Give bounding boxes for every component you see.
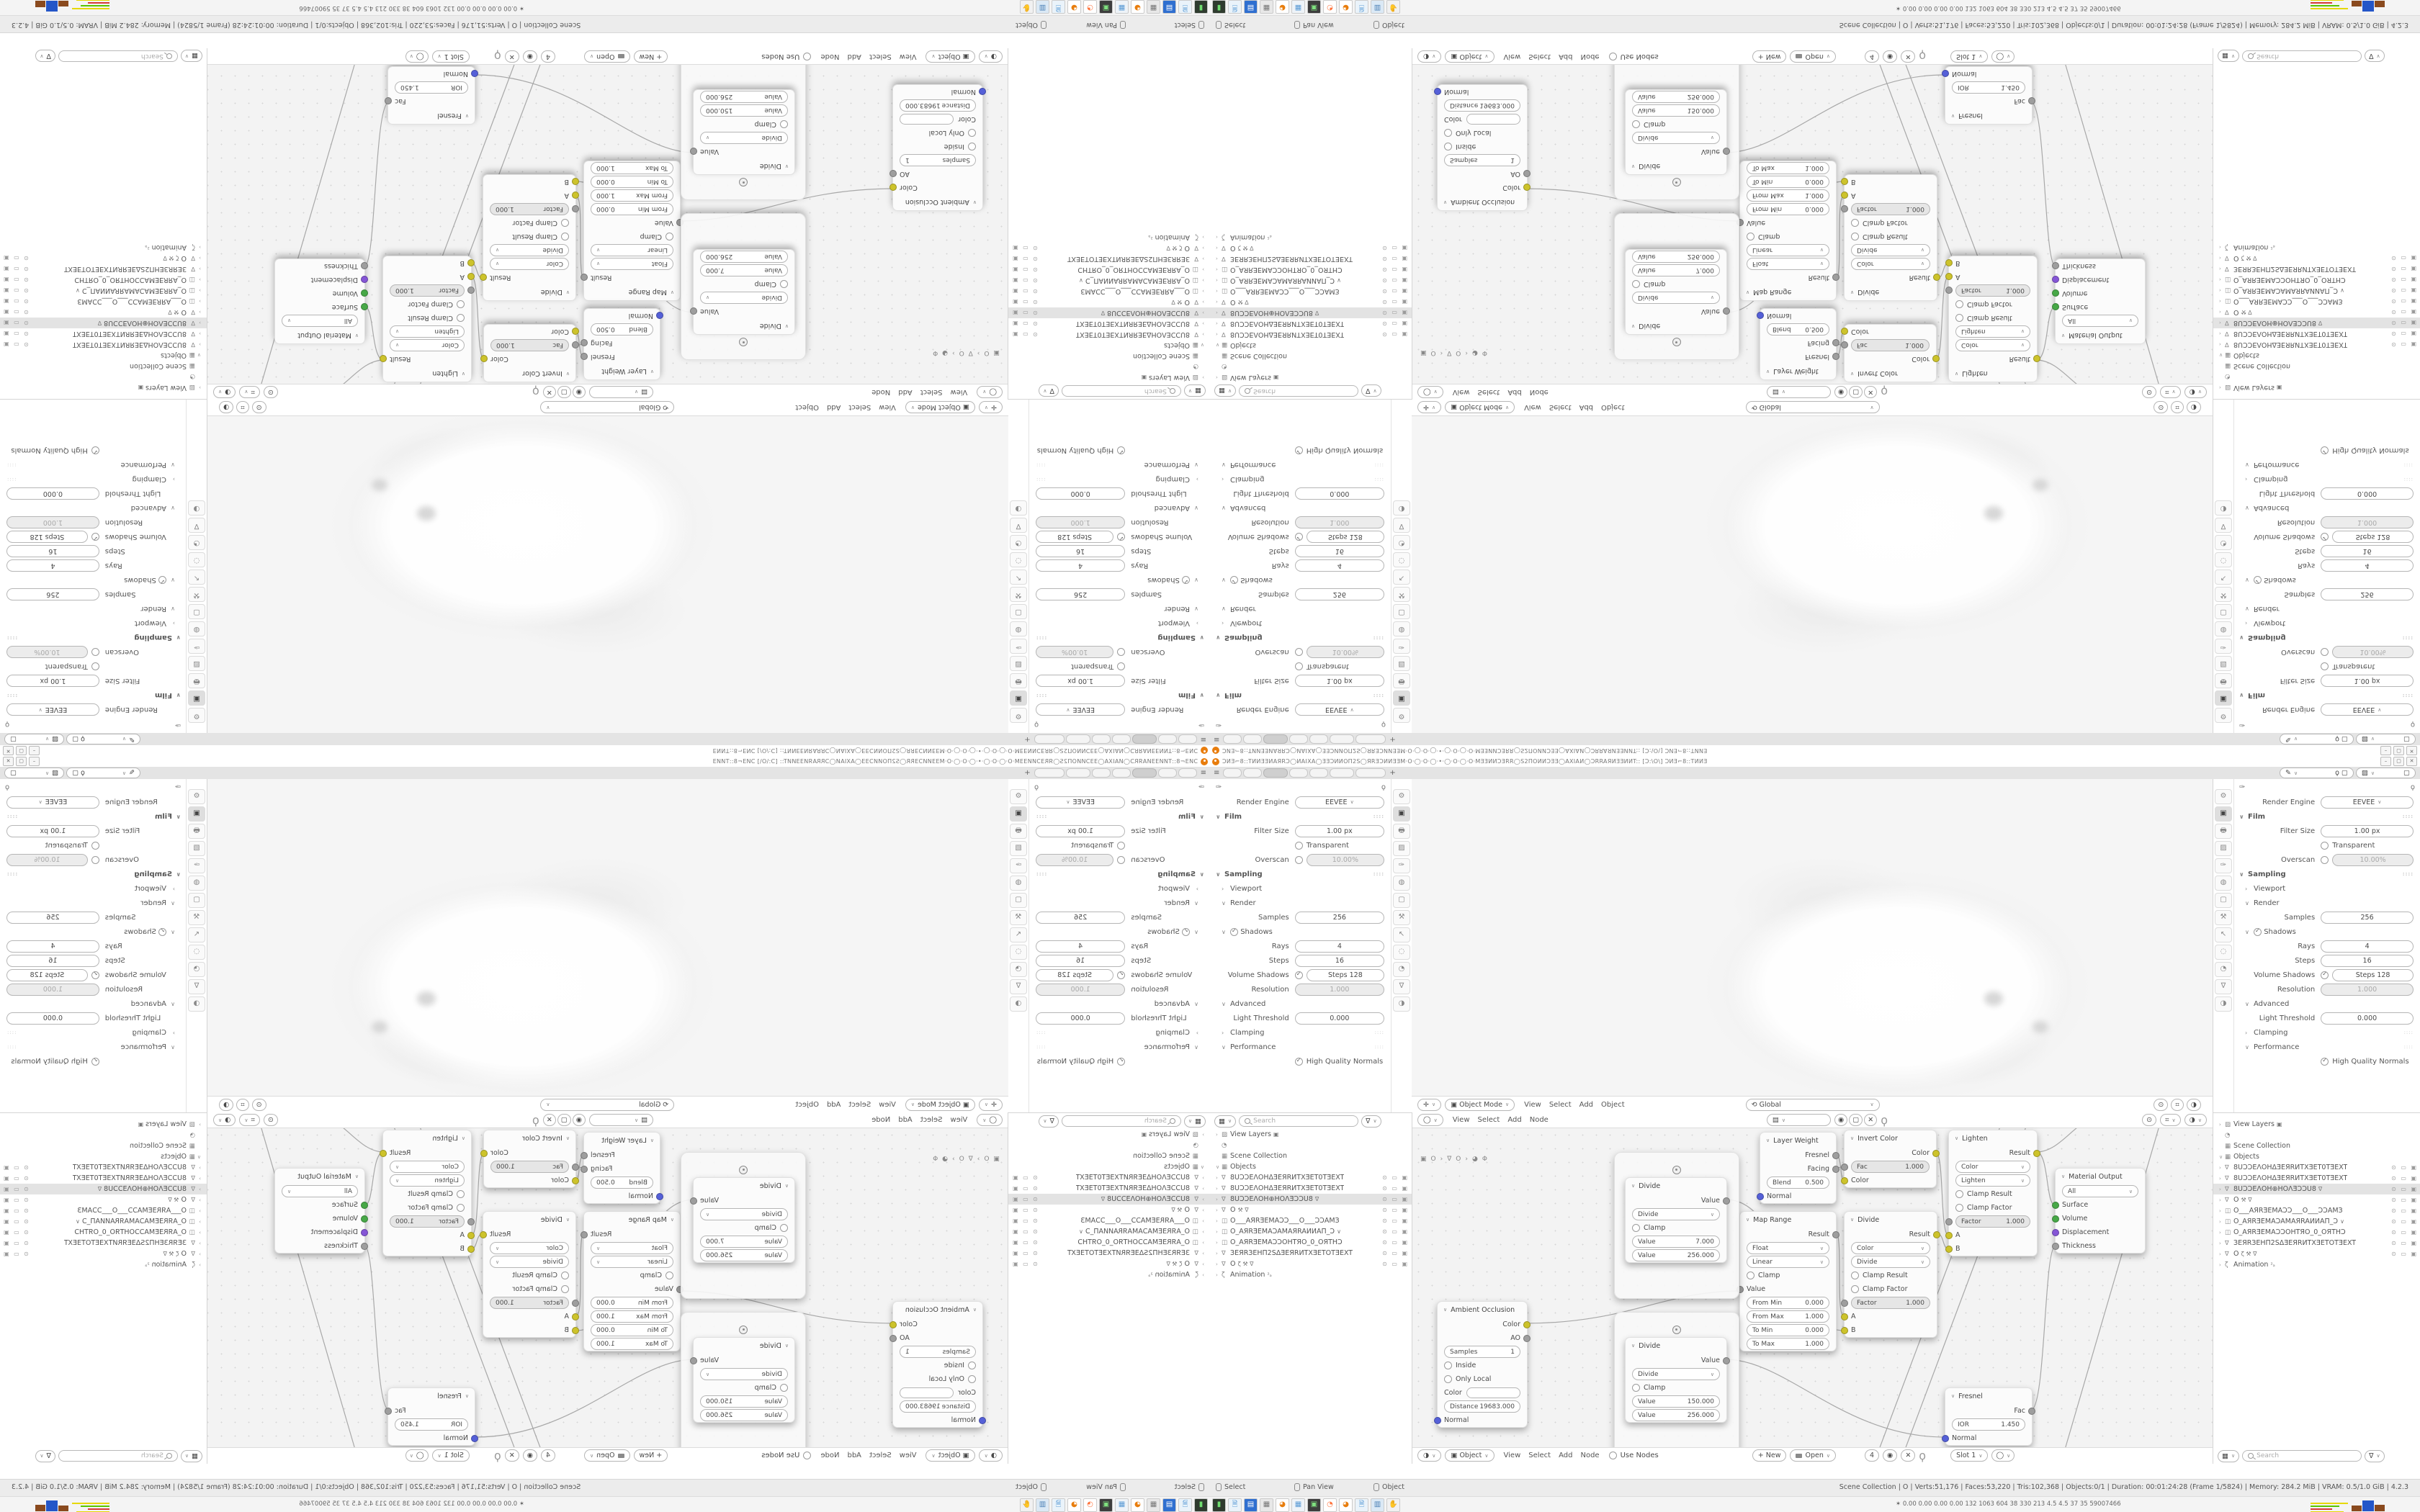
- node-checkbox[interactable]: Clamp Result: [383, 1187, 471, 1201]
- input-socket[interactable]: [656, 1193, 663, 1200]
- properties-tab-icon[interactable]: ▢: [188, 604, 205, 619]
- taskbar-app-icon[interactable]: ▥: [1371, 1, 1384, 14]
- window-titlebar[interactable]: ƆИƎ⌐8::TИИƎƎͶAЯRƆ◯ИAIXA◯ƎƎƆИИOΠ2S◯ЯRƎƆИИ…: [0, 744, 1210, 756]
- property-row[interactable]: High Quality Normals: [1210, 1054, 1391, 1068]
- properties-tab-icon[interactable]: 🖶: [188, 824, 205, 839]
- node-menu-item[interactable]: View: [1453, 388, 1470, 396]
- outliner-filter-button[interactable]: ∇∨: [1361, 1115, 1381, 1128]
- outliner-row[interactable]: ›∇8UƆƆEΛOHΔƎEЯRИTXƎET0TƎEXT⊙ ▭ ▣: [1008, 318, 1210, 329]
- add-workspace-button[interactable]: +: [1024, 769, 1030, 777]
- property-row[interactable]: Steps16: [1028, 953, 1210, 968]
- node-menu-item[interactable]: View: [1504, 1452, 1521, 1459]
- outliner-row[interactable]: ▦Scene Collection: [1008, 1151, 1210, 1161]
- node-shading-button[interactable]: ◯∨: [405, 1449, 429, 1462]
- node-dropdown[interactable]: Divide∨: [1626, 1367, 1726, 1381]
- outliner-row[interactable]: ◔: [1008, 361, 1210, 372]
- editor-type-button[interactable]: ◑∨: [1417, 1449, 1441, 1462]
- outliner-row[interactable]: ›ζAnimation²ₐ: [2213, 242, 2420, 253]
- input-socket[interactable]: [1841, 179, 1848, 186]
- node-dropdown[interactable]: All∨: [275, 314, 364, 328]
- outliner-row[interactable]: ›∇8UƆƆEΛOH⊕HOΛƎƆƆU8∇⊙ ▭ ▣: [1210, 1194, 1412, 1205]
- viewport-menu-item[interactable]: Add: [827, 404, 841, 412]
- node-menu-item[interactable]: Select: [869, 1452, 892, 1459]
- properties-tab-icon[interactable]: ✑: [2215, 858, 2232, 873]
- input-socket[interactable]: [361, 304, 368, 311]
- orientation-selector[interactable]: ⟲ Global∨: [1746, 402, 1880, 414]
- input-socket[interactable]: [1841, 1177, 1848, 1184]
- object-context-button[interactable]: ▣ Object∨: [926, 50, 974, 63]
- snap-button[interactable]: ⌗∨: [239, 386, 259, 398]
- property-row[interactable]: ›Viewport: [2233, 616, 2420, 631]
- outliner-row[interactable]: ▦Scene Collection: [1210, 351, 1412, 361]
- outliner-row[interactable]: ›◫O___AЯRƎEMAƆƆ___O___ƆƆAMЗ⊙ ▭ ▣: [1210, 286, 1412, 297]
- workspace-tab[interactable]: [1132, 768, 1157, 778]
- outliner-row[interactable]: ›∇8UƆƆEΛOHΔƎEЯRИTXƎET0TƎEXT⊙ ▭ ▣: [1210, 1183, 1412, 1194]
- fake-user-button[interactable]: ◉: [1883, 1449, 1897, 1462]
- open-image-button[interactable]: Open∨: [1790, 50, 1836, 63]
- outliner-row[interactable]: ›∇O⚒ ∇⊙ ▭ ▣: [1210, 1205, 1412, 1215]
- output-socket[interactable]: [480, 1231, 487, 1238]
- node-title[interactable]: ∨Lighten: [1949, 1130, 2037, 1146]
- node-value-field[interactable]: Factor1.000: [383, 1215, 471, 1228]
- scene-selector[interactable]: ✎∨ϙ▢: [66, 768, 140, 778]
- viewport-toggle-button[interactable]: ⊙: [252, 402, 266, 414]
- outliner-row[interactable]: ∨▦Objects: [1008, 1161, 1210, 1172]
- property-row[interactable]: Light Threshold0.000: [0, 487, 187, 501]
- shader-node[interactable]: ∨Map RangeResultFloat∨Linear∨ClampValueF…: [583, 161, 681, 301]
- property-row[interactable]: Samples256: [2233, 910, 2420, 924]
- workspace-tab[interactable]: [1263, 734, 1288, 744]
- reroute-node[interactable]: [739, 338, 748, 346]
- viewport-menu-item[interactable]: Object: [1601, 404, 1625, 412]
- node-checkbox[interactable]: Clamp: [694, 277, 794, 291]
- input-socket[interactable]: [656, 312, 663, 320]
- outliner-row[interactable]: ›◫O_AЯRƎEMAƆƆOHTЯO_0_OЯTHƆ⊙ ▭ ▣: [1008, 1237, 1210, 1248]
- outliner-row[interactable]: ›◫O_AЯRƎEMAƆƆOHTЯO_0_OЯTHƆ⊙ ▭ ▣: [1210, 264, 1412, 275]
- taskbar-app-icon[interactable]: ◕: [1067, 1498, 1081, 1512]
- properties-tab-icon[interactable]: 🖶: [1393, 673, 1410, 688]
- node-title[interactable]: ∨Divide: [1845, 284, 1937, 300]
- properties-tab-icon[interactable]: ◍: [2215, 876, 2232, 891]
- taskbar-app-icon[interactable]: 🗎: [1178, 1, 1192, 14]
- node-value-field[interactable]: To Max1.000: [1740, 161, 1836, 175]
- editor-type-button[interactable]: ◑∨: [979, 50, 1003, 63]
- material-action-button[interactable]: ◉: [573, 1114, 586, 1126]
- taskbar-app-icon[interactable]: ◔: [1323, 1498, 1337, 1512]
- properties-tab-icon[interactable]: ⚒: [2215, 910, 2232, 925]
- node-menu-item[interactable]: Select: [869, 53, 892, 60]
- outliner-row[interactable]: ›ζAnimation²ₐ: [1008, 232, 1210, 243]
- reroute-node[interactable]: [739, 178, 748, 186]
- viewport-menu-item[interactable]: Select: [848, 1101, 871, 1109]
- properties-tab-icon[interactable]: ✑: [1393, 639, 1410, 654]
- reroute-node[interactable]: [739, 1166, 748, 1174]
- shader-node[interactable]: ∨DivideValueDivide∨ClampValue150.000Valu…: [1625, 1337, 1727, 1423]
- input-socket[interactable]: [572, 179, 579, 186]
- input-socket[interactable]: [467, 1246, 475, 1253]
- minimize-button[interactable]: –: [29, 757, 40, 766]
- node-value-field[interactable]: From Max1.000: [584, 189, 680, 202]
- node-value-field[interactable]: Value7.000: [1626, 264, 1726, 277]
- property-row[interactable]: Volume ShadowsSteps 128: [1028, 968, 1210, 982]
- material-action-button[interactable]: ✕: [1864, 1114, 1877, 1126]
- property-row[interactable]: ›Viewport: [1028, 881, 1210, 896]
- shader-node[interactable]: ∨LightenResultColor∨Lighten∨Clamp Result…: [382, 1130, 472, 1256]
- properties-tab-icon[interactable]: ∇: [2215, 518, 2232, 533]
- outliner-row[interactable]: ›∇8UƆƆEΛOHΔƎEЯRИTXƎET0TƎEXT⊙ ▭ ▣: [2213, 328, 2420, 339]
- workspace-tab[interactable]: [1223, 768, 1242, 778]
- taskbar-app-icon[interactable]: 🗎: [1228, 1498, 1242, 1512]
- editor-type-button[interactable]: ◑∨: [1417, 50, 1441, 63]
- node-value-field[interactable]: From Max1.000: [1740, 1310, 1836, 1323]
- shader-node[interactable]: ∨DivideValueDivide∨ClampValue7.000Value2…: [1625, 1177, 1727, 1263]
- shading-button[interactable]: ◑∨: [2184, 1114, 2207, 1126]
- property-row[interactable]: Transparent: [1210, 660, 1391, 674]
- node-title[interactable]: ∨Divide: [1626, 158, 1726, 174]
- viewport-editor-type-button[interactable]: ✛∨: [979, 402, 1003, 414]
- outliner-row[interactable]: ›∇Oζ ⚒ ∇⊙ ▭ ▣: [1210, 243, 1412, 253]
- node-dropdown[interactable]: Color∨: [383, 1160, 471, 1174]
- node-title[interactable]: ∨Material Output: [2056, 328, 2145, 343]
- property-row[interactable]: Filter Size1.00 px: [1210, 674, 1391, 688]
- workspace-tab[interactable]: [1092, 734, 1111, 744]
- node-checkbox[interactable]: Clamp Result: [483, 230, 575, 243]
- outliner-row[interactable]: ›◫O_AЯRƎEMAƆƆOHTЯO_0_OЯTHƆ⊙ ▭ ▣: [2213, 274, 2420, 285]
- properties-tab-icon[interactable]: ◍: [1010, 876, 1027, 891]
- node-editor-type-button[interactable]: ◯∨: [977, 1114, 1003, 1126]
- node-color-field[interactable]: Color: [893, 112, 982, 126]
- node-menu-item[interactable]: Add: [1559, 53, 1572, 60]
- outliner-search[interactable]: Search: [1062, 385, 1181, 397]
- node-title[interactable]: ∨Layer Weight: [584, 364, 660, 379]
- node-menu-item[interactable]: Add: [898, 1116, 912, 1124]
- property-row[interactable]: Samples256: [1210, 588, 1391, 602]
- shader-node-editor[interactable]: ◯∨ ViewSelectAddNode ▤∨ ◉▢✕ ϙ ⊙ ⌗∨ ◑∨ ▣O…: [1412, 49, 2213, 400]
- input-socket[interactable]: [467, 274, 475, 281]
- input-socket[interactable]: [1757, 1193, 1764, 1200]
- shader-node[interactable]: ∨Material OutputAll∨SurfaceVolumeDisplac…: [274, 1168, 365, 1254]
- restore-button[interactable]: ▢: [2393, 757, 2404, 766]
- output-socket[interactable]: [690, 308, 697, 315]
- property-row[interactable]: ∨Performance::::: [1028, 458, 1210, 472]
- node-title[interactable]: ∨Fresnel: [388, 108, 475, 124]
- property-row[interactable]: ∨Advanced: [0, 996, 187, 1011]
- outliner-row[interactable]: ›∇8UƆƆEΛOHΔƎEЯRИTXƎET0TƎEXT⊙ ▭ ▣: [1008, 1172, 1210, 1183]
- outliner-row[interactable]: ›ζAnimation²ₐ: [1210, 1269, 1412, 1280]
- taskbar-app-icon[interactable]: 🗎: [1228, 1, 1242, 14]
- new-image-button[interactable]: + New: [634, 50, 668, 63]
- pin-icon[interactable]: ϙ: [1881, 1113, 1888, 1127]
- new-image-button[interactable]: + New: [1752, 1449, 1787, 1462]
- outliner-row[interactable]: ▦Scene Collection: [1210, 1151, 1412, 1161]
- outliner-display-mode[interactable]: ▦∨: [1214, 385, 1236, 397]
- properties-tab-icon[interactable]: ⚒: [188, 910, 205, 925]
- shader-node[interactable]: ∨Material OutputAll∨SurfaceVolumeDisplac…: [2055, 1168, 2146, 1254]
- orientation-selector[interactable]: ⟲ Global∨: [1746, 1099, 1880, 1111]
- node-menu-item[interactable]: View: [900, 53, 917, 60]
- pin-icon[interactable]: ϙ: [1034, 783, 1039, 791]
- node-menu-item[interactable]: Node: [1580, 53, 1599, 60]
- taskbar-app-icon[interactable]: ◔: [1083, 1, 1097, 14]
- outliner-row[interactable]: ›◫O_AЯRƎEMAƆAMAЯRAИИAΠ_Ɔ∨⊙ ▭ ▣: [2213, 1216, 2420, 1227]
- material-selector[interactable]: ▤∨: [1767, 386, 1831, 398]
- input-socket[interactable]: [1942, 71, 1949, 78]
- new-image-button[interactable]: + New: [1752, 50, 1787, 63]
- viewport-menu-item[interactable]: Select: [1549, 404, 1572, 412]
- output-socket[interactable]: [480, 274, 487, 282]
- property-row[interactable]: Light Threshold0.000: [2233, 1011, 2420, 1025]
- property-row[interactable]: ∨Sampling::::: [1028, 631, 1210, 645]
- input-socket[interactable]: [1945, 274, 1953, 281]
- workspace-tab[interactable]: [1112, 734, 1131, 744]
- output-socket[interactable]: [1832, 1166, 1839, 1173]
- taskbar-app-icon[interactable]: ▤: [1162, 1498, 1176, 1512]
- outliner-display-mode[interactable]: ▦∨: [181, 50, 202, 63]
- property-row[interactable]: High Quality Normals: [1028, 444, 1210, 458]
- node-value-field[interactable]: To Min0.000: [584, 1323, 680, 1337]
- node-dropdown[interactable]: Float∨: [1740, 257, 1836, 271]
- taskbar-app-icon[interactable]: ✋: [1386, 1498, 1400, 1512]
- material-action-button[interactable]: ▢: [557, 386, 571, 398]
- properties-tab-icon[interactable]: ⚙: [1393, 708, 1410, 723]
- outliner-row[interactable]: ›◫O___AЯRƎEMAƆƆ___O___ƆƆAMЗ⊙ ▭ ▣: [2213, 1205, 2420, 1216]
- node-title[interactable]: ∨Divide: [483, 284, 575, 300]
- properties-tab-icon[interactable]: ⚒: [1393, 910, 1410, 925]
- output-socket[interactable]: [1832, 340, 1839, 347]
- property-row[interactable]: Overscan10.00%: [1210, 645, 1391, 660]
- node-checkbox[interactable]: Clamp Factor: [483, 216, 575, 230]
- taskbar-app-icon[interactable]: ▮: [1212, 1, 1226, 14]
- property-row[interactable]: Samples256: [0, 588, 187, 602]
- properties-tab-icon[interactable]: ▨: [2215, 841, 2232, 856]
- taskbar-app-icon[interactable]: ◕: [1131, 1498, 1144, 1512]
- property-row[interactable]: ›Viewport: [0, 616, 187, 631]
- outliner-row[interactable]: ∨▦Objects: [0, 350, 207, 361]
- node-canvas[interactable]: ▣O›∇O›◕Φ: [207, 65, 1008, 384]
- node-checkbox[interactable]: Clamp: [1626, 1221, 1726, 1235]
- shader-node[interactable]: ∨DivideResultColor∨Divide∨Clamp ResultCl…: [483, 1211, 576, 1338]
- viewport-toggle-button[interactable]: ⌗: [236, 402, 248, 414]
- property-row[interactable]: Filter Size1.00 px: [0, 674, 187, 688]
- snap-button[interactable]: ⌗∨: [239, 1114, 259, 1126]
- properties-tab-icon[interactable]: ∇: [1393, 979, 1410, 994]
- node-value-field[interactable]: IOR1.450: [388, 1418, 475, 1431]
- node-dropdown[interactable]: Divide∨: [483, 1255, 575, 1269]
- outliner-row[interactable]: ◔: [1210, 1140, 1412, 1151]
- property-row[interactable]: Samples256: [1028, 588, 1210, 602]
- node-value-field[interactable]: Value150.000: [1626, 104, 1726, 117]
- workspace-tab[interactable]: [1158, 768, 1177, 778]
- taskbar-app-icon[interactable]: ▦: [1147, 1, 1160, 14]
- node-dropdown[interactable]: Float∨: [1740, 1241, 1836, 1255]
- node-canvas[interactable]: ▣O›∇O›◕Φ: [1412, 65, 2213, 384]
- node-menu-item[interactable]: Add: [848, 53, 861, 60]
- property-row[interactable]: Overscan10.00%: [0, 645, 187, 660]
- node-title[interactable]: ∨Ambient Occlusion: [893, 194, 982, 210]
- node-editor-type-button[interactable]: ◯∨: [1417, 386, 1443, 398]
- outliner-row[interactable]: ▦Scene Collection: [0, 361, 207, 372]
- taskbar-app-icon[interactable]: ▥: [1371, 1498, 1384, 1512]
- slot-selector[interactable]: Slot 1∨: [1950, 50, 1988, 63]
- outliner-filter-button[interactable]: ∇∨: [2365, 1450, 2384, 1462]
- output-socket[interactable]: [1523, 1335, 1531, 1342]
- pin-icon[interactable]: ϙ: [1381, 721, 1386, 729]
- reroute-node[interactable]: [1672, 1166, 1681, 1174]
- viewport-toggle-button[interactable]: ⌗: [2171, 1099, 2183, 1111]
- node-menu-item[interactable]: View: [900, 1452, 917, 1459]
- input-socket[interactable]: [1434, 1417, 1441, 1424]
- node-value-field[interactable]: From Min0.000: [1740, 1296, 1836, 1310]
- property-row[interactable]: ›Viewport: [2233, 881, 2420, 896]
- outliner-row[interactable]: ›∇ЗEЯRЗEHΠ2SΔƎEЯRИTXƎETOTƎEXT⊙ ▭ ▣: [1210, 1248, 1412, 1259]
- node-title[interactable]: ∨Ambient Occlusion: [1438, 194, 1527, 210]
- output-socket[interactable]: [581, 340, 588, 347]
- property-row[interactable]: Filter Size1.00 px: [1028, 674, 1210, 688]
- property-row[interactable]: ∨Advanced: [1028, 501, 1210, 516]
- node-checkbox[interactable]: Clamp: [694, 117, 794, 131]
- add-workspace-button[interactable]: +: [1389, 769, 1395, 777]
- viewport-toggle-button[interactable]: ⊙: [252, 1099, 266, 1111]
- property-row[interactable]: Resolution1.000: [0, 516, 187, 530]
- property-row[interactable]: Volume ShadowsSteps 128: [1210, 530, 1391, 544]
- property-row[interactable]: Steps16: [1210, 953, 1391, 968]
- shading-button[interactable]: ◑∨: [213, 1114, 236, 1126]
- node-checkbox[interactable]: Clamp: [694, 1381, 794, 1395]
- shader-node[interactable]: ∨Layer WeightFresnelFacingBlend0.500Norm…: [1760, 308, 1837, 380]
- shader-node[interactable]: ∨FresnelFacIOR1.450Normal: [1945, 1387, 2033, 1446]
- outliner-filter-button[interactable]: ∇∨: [1361, 385, 1381, 397]
- node-checkbox[interactable]: Only Local: [1438, 126, 1527, 140]
- workspace-tab[interactable]: [1158, 734, 1177, 744]
- property-row[interactable]: Filter Size1.00 px: [0, 824, 187, 838]
- outliner-display-mode[interactable]: ▦∨: [1184, 385, 1206, 397]
- node-menu-item[interactable]: Node: [820, 53, 839, 60]
- outliner-row[interactable]: ›◫O_AЯRƎEMAƆAMAЯRAИИAΠ_Ɔ∨⊙ ▭ ▣: [0, 1216, 207, 1227]
- shader-node[interactable]: ∨DivideValueDivide∨ClampValue7.000Value2…: [1625, 249, 1727, 335]
- node-dropdown[interactable]: Divide∨: [694, 131, 794, 145]
- outliner-row[interactable]: ›▨View Layers▣: [0, 382, 207, 393]
- property-row[interactable]: Volume ShadowsSteps 128: [1028, 530, 1210, 544]
- shader-node[interactable]: ∨Layer WeightFresnelFacingBlend0.500Norm…: [1760, 1132, 1837, 1204]
- taskbar-app-icon[interactable]: ◕: [1276, 1, 1289, 14]
- outliner-row[interactable]: ›∇ЗEЯRЗEHΠ2SΔƎEЯRИTXƎETOTƎEXT⊙ ▭ ▣: [0, 264, 207, 274]
- output-socket[interactable]: [1832, 274, 1839, 282]
- output-socket[interactable]: [1832, 1231, 1839, 1238]
- taskbar-app-icon[interactable]: 🗎: [1355, 1498, 1368, 1512]
- viewport-3d[interactable]: ✛∨ ▣ Object Mode∨ ViewSelectAddObject ⟲ …: [207, 400, 1008, 733]
- shader-node[interactable]: ∨Invert ColorColorFac1.000Color: [1844, 324, 1937, 382]
- shader-node[interactable]: ∨Invert ColorColorFac1.000Color: [483, 1130, 576, 1188]
- properties-tab-icon[interactable]: ◑: [1010, 500, 1027, 516]
- property-row[interactable]: Transparent: [0, 838, 187, 852]
- node-menu-item[interactable]: Node: [820, 1452, 839, 1459]
- properties-tab-icon[interactable]: ↖: [188, 570, 205, 585]
- outliner-row[interactable]: ▦Scene Collection: [2213, 361, 2420, 372]
- properties-tab-icon[interactable]: 🖶: [1010, 824, 1027, 839]
- node-dropdown[interactable]: Linear∨: [584, 243, 680, 257]
- outliner-display-mode[interactable]: ▦∨: [1184, 1115, 1206, 1128]
- shading-button[interactable]: ◑∨: [2184, 386, 2207, 398]
- node-checkbox[interactable]: Clamp Factor: [1949, 297, 2037, 311]
- property-row[interactable]: ∨Film::::: [1028, 688, 1210, 703]
- property-row[interactable]: Render EngineEEVEE∨: [1028, 795, 1210, 809]
- node-dropdown[interactable]: Divide∨: [694, 1367, 794, 1381]
- property-row[interactable]: Render EngineEEVEE∨: [1210, 703, 1391, 717]
- properties-tab-icon[interactable]: ▣: [1393, 690, 1410, 706]
- taskbar-app-icon[interactable]: ▣: [1307, 1, 1321, 14]
- node-dropdown[interactable]: Linear∨: [584, 1255, 680, 1269]
- outliner-row[interactable]: ›◫O_AЯRƎEMAƆƆOHTЯO_0_OЯTHƆ⊙ ▭ ▣: [1210, 1237, 1412, 1248]
- property-row[interactable]: ∨Performance::::: [2233, 458, 2420, 472]
- properties-tab-icon[interactable]: ◑: [1393, 996, 1410, 1012]
- material-selector[interactable]: ▤∨: [1767, 1114, 1831, 1126]
- properties-tab-icon[interactable]: ⚒: [188, 587, 205, 602]
- node-value-field[interactable]: Factor1.000: [383, 284, 471, 297]
- property-row[interactable]: ∨Render: [2233, 602, 2420, 616]
- taskbar-app-icon[interactable]: ◕: [1276, 1498, 1289, 1512]
- outliner-row[interactable]: ›◫O_AЯRƎEMAƆƆOHTЯO_0_OЯTHƆ⊙ ▭ ▣: [0, 274, 207, 285]
- fake-user-button[interactable]: ◉: [1883, 50, 1897, 63]
- node-dropdown[interactable]: Color∨: [1949, 338, 2037, 352]
- property-row[interactable]: Rays4: [2233, 939, 2420, 953]
- properties-tab-icon[interactable]: ◌: [188, 945, 205, 960]
- properties-tab-icon[interactable]: ▣: [2215, 806, 2232, 822]
- viewport-menu-item[interactable]: Select: [848, 404, 871, 412]
- node-dropdown[interactable]: All∨: [2056, 314, 2145, 328]
- output-socket[interactable]: [1523, 171, 1531, 178]
- outliner-row[interactable]: ∨▦Objects: [0, 1151, 207, 1162]
- viewport-toggle-button[interactable]: ⌗: [2171, 402, 2183, 414]
- property-row[interactable]: Overscan10.00%: [1028, 852, 1210, 867]
- input-socket[interactable]: [1757, 312, 1764, 320]
- shader-node[interactable]: ∨Map RangeResultFloat∨Linear∨ClampValueF…: [1739, 1211, 1837, 1351]
- node-value-field[interactable]: Distance19683.000: [893, 1400, 982, 1413]
- node-title[interactable]: ∨Divide: [1626, 1178, 1726, 1194]
- property-row[interactable]: Render EngineEEVEE∨: [1210, 795, 1391, 809]
- node-dropdown[interactable]: Lighten∨: [383, 1174, 471, 1187]
- node-menu-item[interactable]: Add: [898, 388, 912, 396]
- node-checkbox[interactable]: Clamp: [584, 230, 680, 243]
- outliner-row[interactable]: ›∇Oζ ⚒ ∇⊙ ▭ ▣: [1210, 1259, 1412, 1269]
- pin-icon[interactable]: ϙ: [532, 385, 539, 399]
- property-row[interactable]: Overscan10.00%: [1028, 645, 1210, 660]
- property-row[interactable]: High Quality Normals: [2233, 444, 2420, 458]
- workspace-tab[interactable]: [1330, 768, 1354, 778]
- node-value-field[interactable]: Samples1: [893, 153, 982, 167]
- node-value-field[interactable]: Factor1.000: [1845, 202, 1937, 216]
- node-dropdown[interactable]: Divide∨: [1626, 1207, 1726, 1221]
- object-context-button[interactable]: ▣ Object∨: [926, 1449, 974, 1462]
- node-checkbox[interactable]: Clamp: [1626, 117, 1726, 131]
- outliner-filter-button[interactable]: ∇∨: [1039, 1115, 1058, 1128]
- input-socket[interactable]: [2052, 1215, 2059, 1223]
- node-checkbox[interactable]: Inside: [1438, 140, 1527, 153]
- shader-node[interactable]: ∨Invert ColorColorFac1.000Color: [483, 324, 576, 382]
- node-menu-item[interactable]: Select: [920, 1116, 943, 1124]
- unlink-button[interactable]: ✕: [505, 1449, 519, 1462]
- viewport-menu-item[interactable]: View: [879, 404, 896, 412]
- shader-node[interactable]: ∨Map RangeResultFloat∨Linear∨ClampValueF…: [583, 1211, 681, 1351]
- output-socket[interactable]: [1723, 308, 1730, 315]
- outliner-row[interactable]: ›∇8UƆƆEΛOHΔƎEЯRИTXƎET0TƎEXT⊙ ▭ ▣: [0, 1173, 207, 1184]
- input-socket[interactable]: [361, 1229, 368, 1236]
- property-row[interactable]: ›Clamping::::: [0, 1025, 187, 1040]
- menu-hamburger-icon[interactable]: ≡: [1214, 769, 1219, 777]
- node-menu-item[interactable]: Node: [871, 1116, 890, 1124]
- slot-selector[interactable]: Slot 1∨: [1950, 1449, 1988, 1462]
- outliner-row[interactable]: ›∇8UƆƆEΛOH⊕HOΛƎƆƆU8∇⊙ ▭ ▣: [2213, 1184, 2420, 1194]
- node-dropdown[interactable]: Color∨: [1845, 257, 1937, 271]
